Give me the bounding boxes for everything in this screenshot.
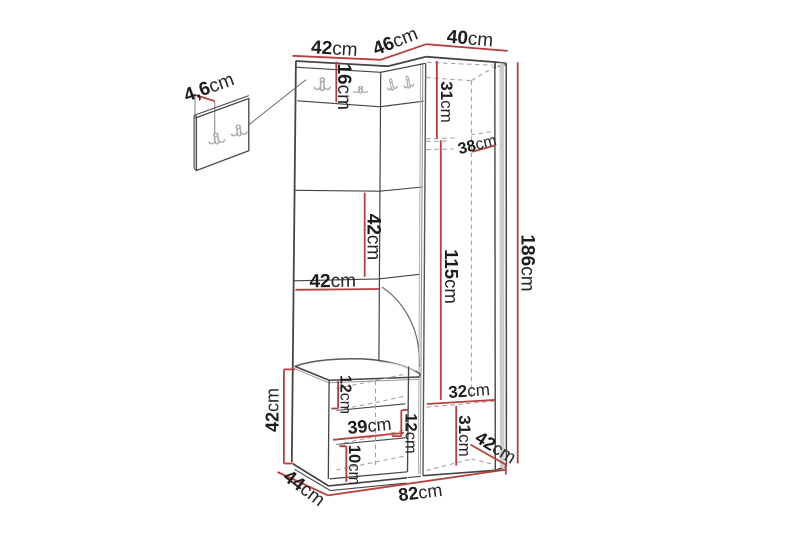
svg-text:31cm: 31cm (437, 81, 456, 123)
svg-text:186cm: 186cm (517, 234, 538, 291)
svg-text:42cm: 42cm (363, 214, 384, 260)
svg-text:10cm: 10cm (345, 445, 363, 485)
svg-text:39cm: 39cm (347, 414, 393, 438)
svg-text:12cm: 12cm (336, 375, 353, 414)
svg-text:42cm: 42cm (311, 37, 359, 61)
svg-text:32cm: 32cm (448, 380, 491, 402)
svg-text:42cm: 42cm (309, 271, 356, 293)
svg-text:16cm: 16cm (333, 63, 354, 109)
svg-text:115cm: 115cm (441, 249, 462, 304)
svg-text:31cm: 31cm (455, 415, 474, 457)
svg-text:42cm: 42cm (262, 388, 282, 432)
svg-text:40cm: 40cm (446, 27, 494, 52)
svg-text:12cm: 12cm (402, 413, 420, 453)
